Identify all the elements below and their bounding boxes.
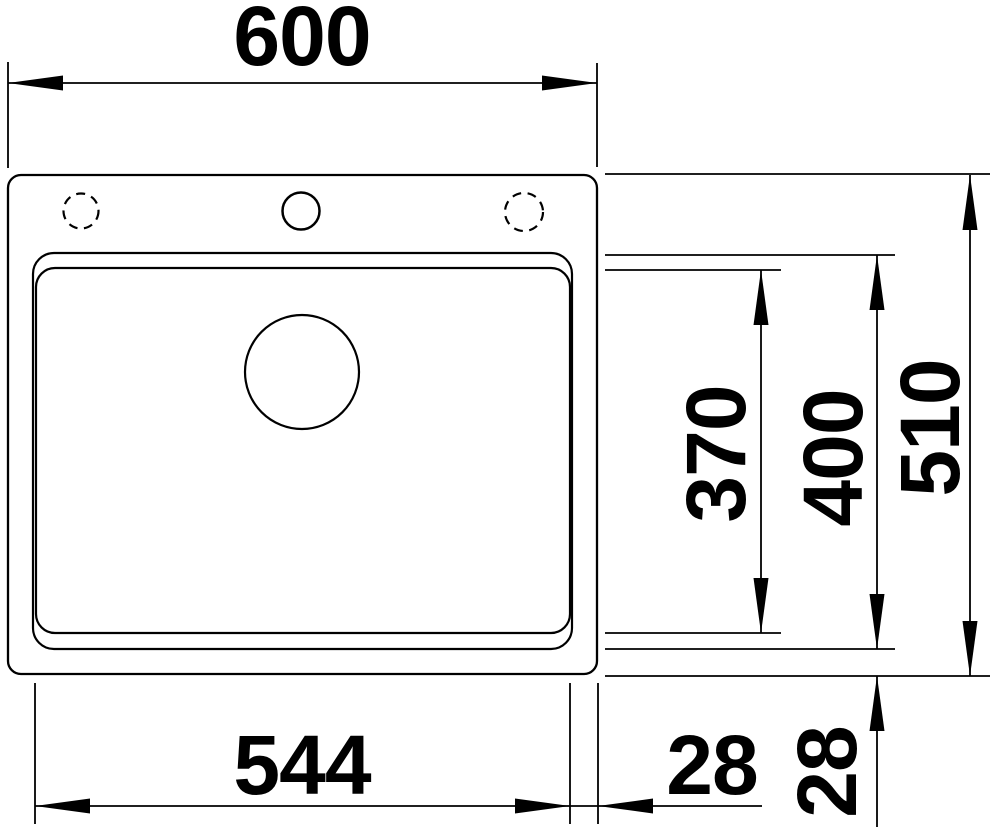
bowl-inner-edge: [36, 268, 570, 633]
bowl-outer-edge: [33, 253, 572, 649]
dim-label-bowl-inner-depth: 370: [674, 334, 758, 574]
dim-label-bowl-width: 544: [182, 723, 422, 807]
sink-outline: [8, 175, 597, 674]
dim-label-right-offset: 28: [652, 723, 772, 807]
dim-label-bowl-outer-depth: 400: [791, 338, 875, 578]
tap-hole-left-optional-icon: [64, 194, 99, 229]
tap-hole-center-icon: [283, 193, 320, 230]
tap-hole-right-optional-icon: [505, 193, 543, 231]
dim-label-overall-depth: 510: [888, 308, 972, 548]
sink-dimension-drawing: 600 544 28 370 400 510 28: [0, 0, 1000, 833]
dim-label-bottom-offset: 28: [785, 712, 869, 832]
dim-label-overall-width: 600: [182, 0, 422, 78]
drain-hole: [245, 315, 359, 429]
